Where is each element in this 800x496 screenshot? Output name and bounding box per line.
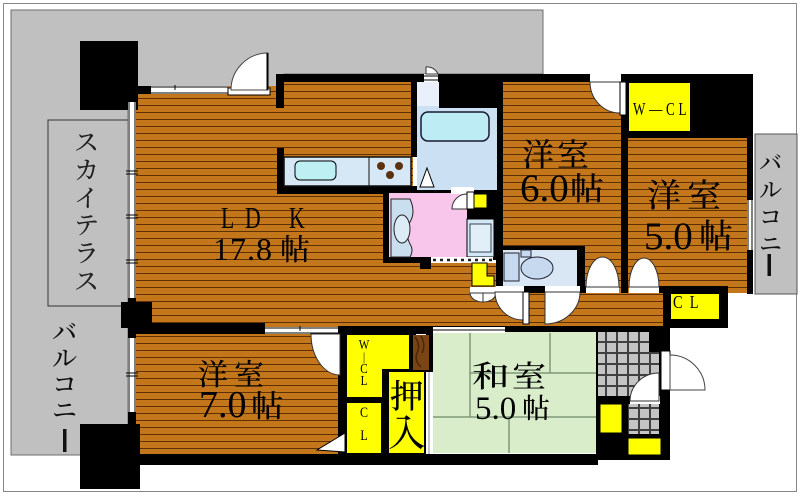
svg-text:D: D bbox=[245, 200, 261, 235]
svg-text:CL: CL bbox=[673, 291, 706, 312]
svg-text:5.0: 5.0 bbox=[475, 391, 516, 427]
svg-text:W—CL: W—CL bbox=[633, 100, 690, 119]
svg-text:5.0: 5.0 bbox=[644, 215, 693, 258]
svg-text:L: L bbox=[361, 373, 368, 388]
svg-text:L: L bbox=[360, 427, 367, 444]
svg-text:C: C bbox=[360, 404, 368, 421]
svg-text:7.0: 7.0 bbox=[199, 384, 247, 426]
svg-text:L: L bbox=[221, 200, 234, 235]
svg-text:6.0: 6.0 bbox=[520, 167, 569, 210]
svg-text:17.8: 17.8 bbox=[213, 231, 273, 267]
svg-text:K: K bbox=[289, 200, 305, 235]
